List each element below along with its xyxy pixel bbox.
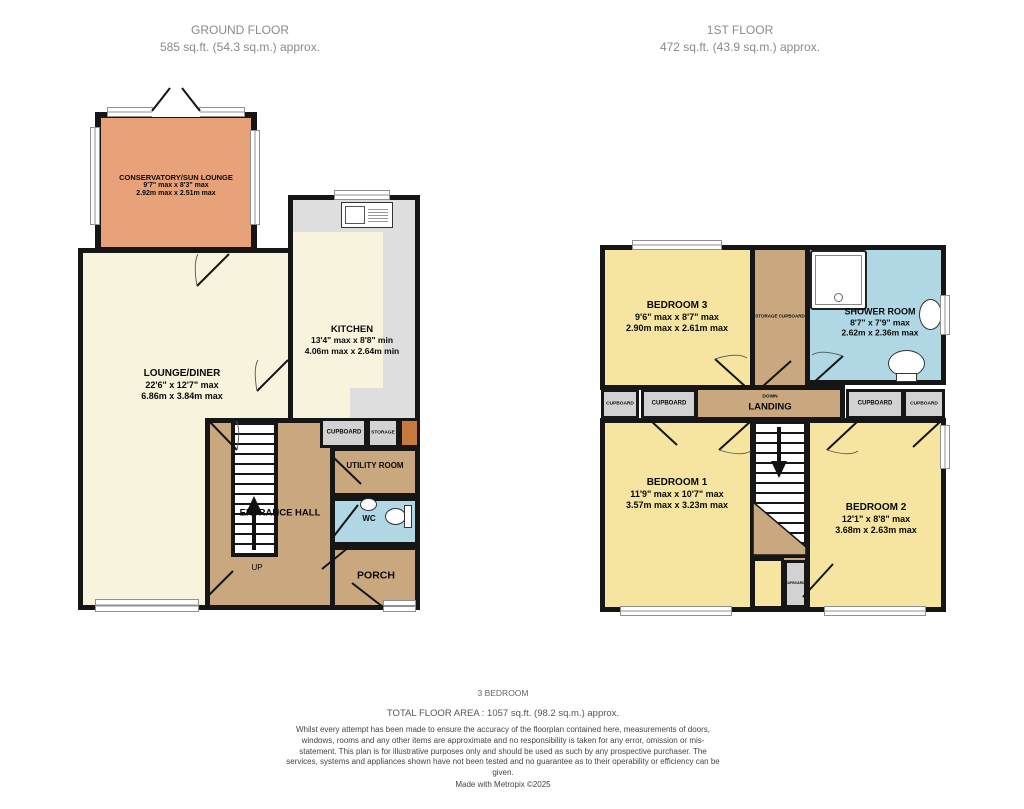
kitchen-counter-right bbox=[383, 200, 415, 418]
boiler-unit bbox=[399, 418, 420, 448]
label-bedroom2: BEDROOM 2 12'1" x 8'8" max 3.68m x 2.63m… bbox=[835, 502, 917, 536]
room-bedroom1 bbox=[600, 418, 755, 612]
room-name: KITCHEN bbox=[305, 324, 400, 335]
window bbox=[95, 599, 199, 612]
first-floor-title: 1ST FLOOR bbox=[628, 22, 852, 39]
room-dims-imperial: 9'6" max x 8'7" max bbox=[626, 312, 728, 323]
ground-floor-title: GROUND FLOOR bbox=[128, 22, 352, 39]
floorplan-page: GROUND FLOOR 585 sq.ft. (54.3 sq.m.) app… bbox=[0, 0, 1024, 809]
total-floor-area: TOTAL FLOOR AREA : 1057 sq.ft. (98.2 sq.… bbox=[283, 708, 723, 719]
room-dims-imperial: 13'4" max x 8'8" min bbox=[305, 336, 400, 346]
first-floor-header: 1ST FLOOR 472 sq.ft. (43.9 sq.m.) approx… bbox=[628, 22, 852, 57]
label-storage-ground: STORAGE bbox=[371, 430, 395, 436]
label-porch: PORCH bbox=[357, 570, 395, 583]
first-floor-area: 472 sq.ft. (43.9 sq.m.) approx. bbox=[628, 39, 852, 56]
window bbox=[824, 606, 926, 616]
window bbox=[383, 600, 416, 612]
window bbox=[90, 127, 100, 225]
label-cupboard-1: CUPBOARD bbox=[606, 401, 634, 407]
label-bedroom1: BEDROOM 1 11'9" max x 10'7" max 3.57m ma… bbox=[626, 477, 728, 511]
ground-floor-area: 585 sq.ft. (54.3 sq.m.) approx. bbox=[128, 39, 352, 56]
label-up: UP bbox=[251, 563, 262, 573]
credit: Made with Metropix ©2025 bbox=[283, 780, 723, 789]
label-entrance-hall: ENTRANCE HALL bbox=[240, 507, 321, 518]
room-dims-imperial: 11'9" max x 10'7" max bbox=[626, 489, 728, 500]
room-dims-metric: 2.90m max x 2.61m max bbox=[626, 323, 728, 334]
window bbox=[107, 107, 153, 117]
label-cupboard-4: CUPBOARD bbox=[910, 401, 938, 407]
window bbox=[199, 107, 245, 117]
room-dims-imperial: 12'1" x 8'8" max bbox=[835, 514, 917, 525]
label-cupboard-small: CUPBOARD bbox=[785, 582, 804, 586]
room-name: BEDROOM 3 bbox=[626, 300, 728, 312]
kitchen-sink-icon bbox=[341, 202, 393, 228]
window bbox=[250, 130, 260, 225]
window bbox=[334, 190, 390, 200]
room-name: CONSERVATORY/SUN LOUNGE bbox=[119, 173, 233, 182]
room-dims-metric: 2.62m x 2.36m max bbox=[841, 327, 918, 337]
label-storage-cupboard: STORAGE CUPBOARD bbox=[755, 314, 804, 319]
door-opening bbox=[152, 109, 200, 117]
label-kitchen: KITCHEN 13'4" max x 8'8" min 4.06m max x… bbox=[305, 324, 400, 356]
stairs-down-arrow bbox=[777, 427, 781, 463]
room-name: LOUNGE/DINER bbox=[141, 368, 223, 380]
footer: 3 BEDROOM TOTAL FLOOR AREA : 1057 sq.ft.… bbox=[283, 688, 723, 789]
room-dims-metric: 3.57m max x 3.23m max bbox=[626, 500, 728, 511]
shower-toilet-cistern-icon bbox=[896, 373, 917, 382]
room-dims-metric: 4.06m max x 2.64m min bbox=[305, 346, 400, 356]
label-lounge: LOUNGE/DINER 22'6" x 12'7" max 6.86m x 3… bbox=[141, 368, 223, 402]
under-stairs-nook bbox=[752, 558, 784, 609]
property-type: 3 BEDROOM bbox=[283, 688, 723, 698]
basin-icon bbox=[360, 498, 377, 511]
ground-floor-header: GROUND FLOOR 585 sq.ft. (54.3 sq.m.) app… bbox=[128, 22, 352, 57]
shower-basin-icon bbox=[919, 299, 942, 330]
toilet-cistern-icon bbox=[404, 505, 412, 528]
room-dims-metric: 2.92m max x 2.51m max bbox=[119, 191, 233, 199]
window bbox=[940, 425, 950, 469]
label-cupboard-ground: CUPBOARD bbox=[327, 429, 362, 436]
label-down: DOWN bbox=[762, 394, 777, 400]
room-utility bbox=[330, 446, 420, 498]
window bbox=[940, 295, 950, 335]
room-dims-metric: 3.68m x 2.63m max bbox=[835, 525, 917, 536]
label-shower-room: SHOWER ROOM 8'7" x 7'9" max 2.62m x 2.36… bbox=[841, 306, 918, 337]
window bbox=[620, 606, 732, 616]
room-name: BEDROOM 2 bbox=[835, 502, 917, 514]
room-dims-metric: 6.86m x 3.84m max bbox=[141, 391, 223, 402]
room-dims-imperial: 22'6" x 12'7" max bbox=[141, 380, 223, 391]
label-cupboard-3: CUPBOARD bbox=[858, 400, 893, 407]
room-name: BEDROOM 1 bbox=[626, 477, 728, 489]
kitchen-counter-corner bbox=[350, 388, 415, 418]
room-dims-imperial: 9'7" max x 8'3" max bbox=[119, 182, 233, 190]
room-name: SHOWER ROOM bbox=[841, 306, 918, 317]
disclaimer: Whilst every attempt has been made to en… bbox=[283, 725, 723, 779]
label-cupboard-2: CUPBOARD bbox=[652, 400, 687, 407]
stairs-down-arrowhead bbox=[771, 461, 787, 478]
label-landing: LANDING bbox=[748, 401, 791, 412]
label-wc: WC bbox=[362, 514, 375, 524]
shower-drain-icon bbox=[834, 293, 843, 302]
label-utility: UTILITY ROOM bbox=[346, 461, 403, 471]
toilet-icon bbox=[385, 508, 406, 525]
label-conservatory: CONSERVATORY/SUN LOUNGE 9'7" max x 8'3" … bbox=[119, 173, 233, 199]
label-bedroom3: BEDROOM 3 9'6" max x 8'7" max 2.90m max … bbox=[626, 300, 728, 334]
window bbox=[632, 240, 722, 250]
room-dims-imperial: 8'7" x 7'9" max bbox=[841, 317, 918, 327]
